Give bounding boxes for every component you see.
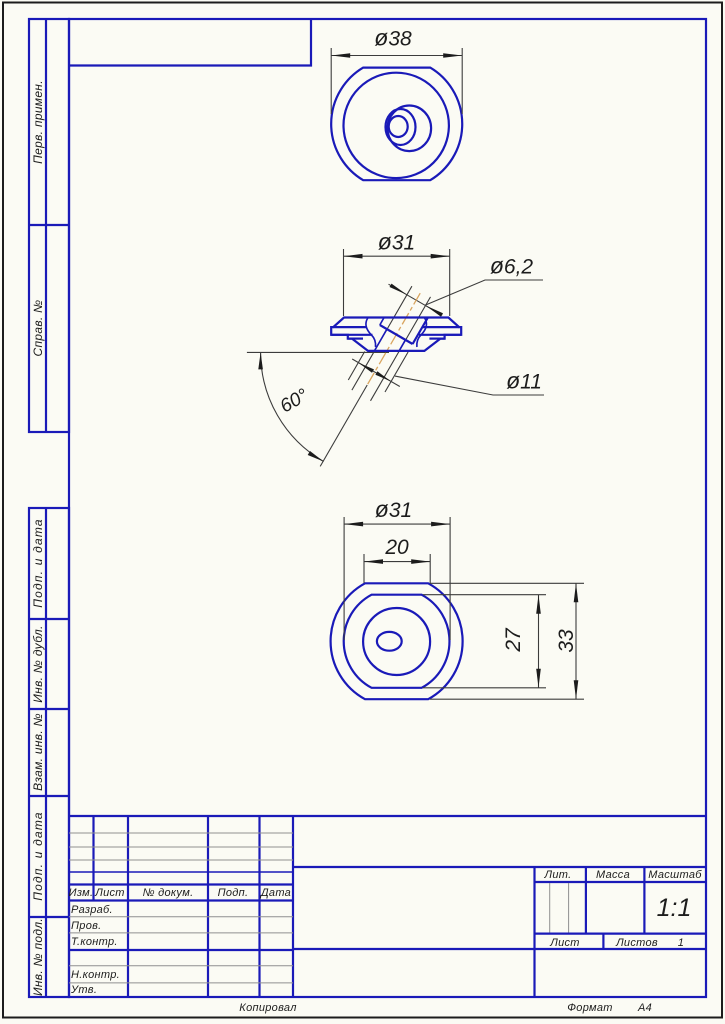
svg-text:Лист: Лист	[549, 937, 580, 949]
svg-text:Инв. № дубл.: Инв. № дубл.	[31, 625, 45, 702]
svg-text:Листов: Листов	[615, 937, 658, 949]
svg-text:ø38: ø38	[374, 25, 412, 51]
svg-text:Лит.: Лит.	[544, 869, 572, 881]
svg-text:Справ. №: Справ. №	[31, 300, 45, 357]
svg-text:Подп. и дата: Подп. и дата	[31, 518, 45, 608]
svg-text:ø31: ø31	[375, 496, 412, 522]
svg-text:Масштаб: Масштаб	[648, 869, 702, 881]
svg-text:ø6,2: ø6,2	[490, 253, 534, 279]
svg-text:Изм.: Изм.	[69, 887, 94, 899]
svg-text:№ докум.: № докум.	[143, 887, 194, 899]
svg-text:Т.контр.: Т.контр.	[71, 936, 118, 948]
svg-text:А4: А4	[637, 1002, 652, 1014]
svg-text:20: 20	[384, 536, 409, 559]
svg-text:Н.контр.: Н.контр.	[71, 969, 120, 981]
svg-text:Формат: Формат	[567, 1002, 612, 1014]
svg-text:Копировал: Копировал	[239, 1002, 296, 1014]
svg-text:Перв. примен.: Перв. примен.	[31, 80, 45, 164]
svg-text:Разраб.: Разраб.	[71, 904, 113, 916]
svg-text:27: 27	[502, 627, 525, 653]
svg-text:Подп. и дата: Подп. и дата	[31, 811, 45, 901]
svg-text:Масса: Масса	[596, 869, 630, 881]
svg-text:Дата: Дата	[259, 887, 291, 899]
svg-text:Подп.: Подп.	[218, 887, 249, 899]
svg-text:Лист: Лист	[94, 887, 125, 899]
svg-text:Инв. № подл.: Инв. № подл.	[31, 918, 45, 996]
svg-text:33: 33	[555, 629, 578, 653]
svg-text:Пров.: Пров.	[71, 920, 102, 932]
svg-text:Взам. инв. №: Взам. инв. №	[31, 713, 45, 791]
svg-text:Утв.: Утв.	[70, 984, 97, 996]
svg-text:1:1: 1:1	[657, 894, 692, 922]
svg-text:1: 1	[678, 937, 684, 949]
svg-text:ø31: ø31	[378, 229, 415, 255]
svg-text:ø11: ø11	[506, 368, 542, 394]
